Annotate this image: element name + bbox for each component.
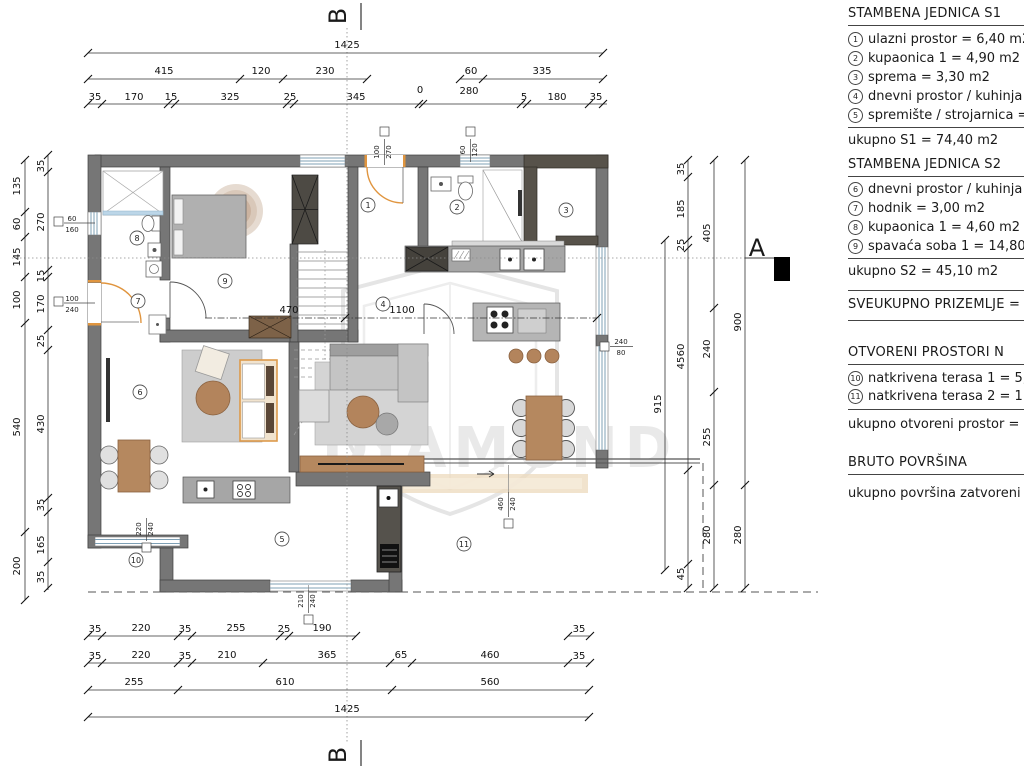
svg-text:35: 35: [89, 92, 102, 103]
svg-text:255: 255: [226, 623, 245, 634]
svg-text:60: 60: [459, 146, 467, 155]
sofa-chaise: [398, 344, 428, 402]
svg-text:240: 240: [65, 306, 78, 314]
svg-text:35: 35: [573, 624, 586, 635]
svg-text:145: 145: [12, 247, 23, 266]
legend-item: 8kupaonica 1 = 4,60 m2: [848, 220, 1020, 235]
svg-text:280: 280: [459, 86, 478, 97]
svg-text:25: 25: [278, 624, 291, 635]
toilet: [459, 182, 473, 200]
svg-text:35: 35: [36, 571, 47, 584]
svg-text:7: 7: [135, 297, 140, 306]
svg-text:430: 430: [36, 414, 47, 433]
svg-text:280: 280: [733, 525, 744, 544]
svg-text:35: 35: [179, 651, 192, 662]
svg-text:60: 60: [465, 66, 478, 77]
svg-text:100: 100: [373, 145, 381, 158]
sofa: [330, 356, 400, 390]
chair: [150, 446, 168, 464]
svg-text:135: 135: [12, 176, 23, 195]
svg-text:11: 11: [459, 540, 469, 549]
svg-text:345: 345: [346, 92, 365, 103]
dining-table: [118, 440, 150, 492]
svg-text:60: 60: [12, 218, 23, 231]
svg-text:25: 25: [676, 239, 687, 252]
svg-text:8: 8: [134, 234, 139, 243]
svg-text:25: 25: [36, 335, 47, 348]
svg-text:35: 35: [89, 624, 102, 635]
chair: [100, 446, 118, 464]
svg-text:45: 45: [676, 568, 687, 581]
section-a-flag: [774, 257, 790, 281]
floor-plan-page: DIAMOND: [0, 0, 1024, 768]
svg-text:35: 35: [590, 92, 603, 103]
svg-text:280: 280: [702, 525, 713, 544]
legend-title-bruto: BRUTO POVRŠINA: [848, 455, 967, 470]
svg-text:915: 915: [653, 394, 664, 413]
svg-text:470: 470: [279, 305, 298, 316]
svg-text:15: 15: [36, 270, 47, 283]
svg-text:1425: 1425: [334, 40, 359, 51]
svg-text:335: 335: [532, 66, 551, 77]
svg-text:0: 0: [417, 85, 423, 96]
svg-text:325: 325: [220, 92, 239, 103]
svg-text:35: 35: [89, 651, 102, 662]
svg-text:100: 100: [65, 295, 78, 303]
svg-text:210: 210: [217, 650, 236, 661]
svg-text:1425: 1425: [334, 704, 359, 715]
svg-text:255: 255: [124, 677, 143, 688]
sink: [452, 249, 470, 261]
toilet: [142, 216, 154, 232]
svg-text:240: 240: [509, 497, 517, 510]
tv: [106, 358, 110, 422]
svg-text:170: 170: [124, 92, 143, 103]
svg-text:405: 405: [702, 223, 713, 242]
legend-panel: STAMBENA JEDNICA S1 1ulazni prostor = 6,…: [845, 0, 1024, 768]
legend-item: 3sprema = 3,30 m2: [848, 70, 990, 85]
svg-text:9: 9: [222, 277, 227, 286]
svg-text:1100: 1100: [389, 305, 414, 316]
legend-title-s2: STAMBENA JEDNICA S2: [848, 157, 1001, 172]
svg-text:35: 35: [179, 624, 192, 635]
legend-item: 2kupaonica 1 = 4,90 m2: [848, 51, 1020, 66]
svg-text:5: 5: [279, 535, 284, 544]
chair: [150, 471, 168, 489]
side-table: [299, 390, 329, 422]
svg-text:35: 35: [36, 160, 47, 173]
svg-text:220: 220: [131, 623, 150, 634]
svg-text:170: 170: [36, 294, 47, 313]
svg-text:35: 35: [36, 499, 47, 512]
svg-text:60: 60: [68, 215, 77, 223]
legend-bruto-text: ukupno površina zatvoreni pro: [848, 486, 1024, 501]
section-marker-b-bottom: B: [324, 747, 352, 763]
cookt op: [233, 481, 255, 499]
svg-text:210: 210: [297, 594, 305, 607]
coffee-table: [347, 396, 379, 428]
cooktop: [487, 307, 513, 333]
svg-text:230: 230: [315, 66, 334, 77]
svg-text:35: 35: [676, 163, 687, 176]
svg-text:240: 240: [702, 339, 713, 358]
svg-text:900: 900: [733, 312, 744, 331]
legend-item: 5spremište / strojarnica = 9,8: [848, 108, 1024, 123]
svg-text:160: 160: [65, 226, 78, 234]
legend-open-total: ukupno otvoreni prostor = 16,4: [848, 417, 1024, 432]
svg-text:60: 60: [676, 344, 687, 357]
svg-text:190: 190: [312, 623, 331, 634]
dining-table: [526, 396, 562, 460]
kitchen-island: [473, 303, 560, 341]
legend-item: 7hodnik = 3,00 m2: [848, 201, 985, 216]
legend-item: 11natkrivena terasa 2 = 11,30: [848, 389, 1024, 404]
legend-item: 10natkrivena terasa 1 = 5,10 m: [848, 371, 1024, 386]
svg-text:540: 540: [12, 417, 23, 436]
svg-text:220: 220: [135, 522, 143, 535]
svg-text:15: 15: [165, 92, 178, 103]
legend-total-s2: ukupno S2 = 45,10 m2: [848, 264, 998, 279]
svg-text:100: 100: [12, 290, 23, 309]
svg-text:220: 220: [131, 650, 150, 661]
section-marker-b-top: B: [324, 8, 352, 24]
svg-text:35: 35: [573, 651, 586, 662]
legend-title-s1: STAMBENA JEDNICA S1: [848, 6, 1001, 21]
svg-text:365: 365: [317, 650, 336, 661]
svg-text:165: 165: [36, 535, 47, 554]
legend-ground-total: SVEUKUPNO PRIZEMLJE =: [848, 297, 1020, 312]
svg-text:240: 240: [147, 522, 155, 535]
entrance-door-arc: [367, 167, 403, 203]
legend-item: 1ulazni prostor = 6,40 m2: [848, 32, 1024, 47]
coffee-table: [196, 381, 230, 415]
svg-text:610: 610: [275, 677, 294, 688]
legend-item: 6dnevni prostor / kuhinja = 2: [848, 182, 1024, 197]
walls-dark: [524, 155, 608, 245]
svg-text:185: 185: [676, 199, 687, 218]
svg-text:460: 460: [480, 650, 499, 661]
svg-text:25: 25: [284, 92, 297, 103]
legend-item: 4dnevni prostor / kuhinja = 5: [848, 89, 1024, 104]
stool: [509, 349, 523, 363]
svg-text:270: 270: [36, 212, 47, 231]
svg-text:200: 200: [12, 556, 23, 575]
svg-text:240: 240: [614, 338, 627, 346]
washing-machine: [146, 261, 162, 277]
legend-total-s1: ukupno S1 = 74,40 m2: [848, 133, 998, 148]
stool: [527, 349, 541, 363]
svg-text:560: 560: [480, 677, 499, 688]
svg-text:10: 10: [131, 556, 141, 565]
chair: [100, 471, 118, 489]
svg-text:270: 270: [385, 145, 393, 158]
svg-text:45: 45: [676, 357, 687, 370]
bedroom-door-arc: [170, 282, 206, 318]
svg-text:4: 4: [380, 300, 385, 309]
svg-text:240: 240: [309, 594, 317, 607]
svg-text:120: 120: [251, 66, 270, 77]
svg-text:3: 3: [563, 206, 568, 215]
svg-text:80: 80: [617, 349, 626, 357]
svg-text:460: 460: [497, 497, 505, 510]
stool: [545, 349, 559, 363]
svg-text:255: 255: [702, 427, 713, 446]
svg-text:2: 2: [454, 203, 459, 212]
svg-text:6: 6: [137, 388, 142, 397]
svg-text:65: 65: [395, 650, 408, 661]
svg-text:415: 415: [154, 66, 173, 77]
legend-title-open: OTVORENI PROSTORI N: [848, 345, 1004, 360]
svg-text:120: 120: [471, 143, 479, 156]
legend-item: 9spavaća soba 1 = 14,80 m2: [848, 239, 1024, 254]
svg-text:1: 1: [365, 201, 370, 210]
svg-text:180: 180: [547, 92, 566, 103]
shower: [103, 211, 163, 215]
svg-text:5: 5: [521, 92, 527, 103]
